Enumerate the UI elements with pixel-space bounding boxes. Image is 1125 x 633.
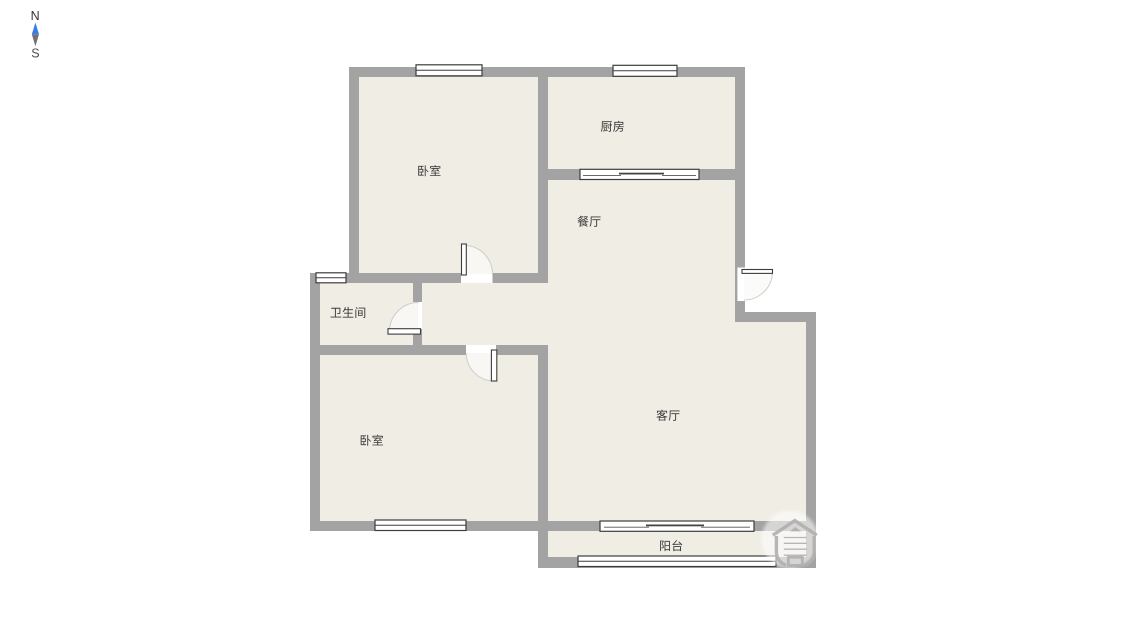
- svg-text:N: N: [31, 9, 40, 23]
- svg-text:S: S: [31, 47, 39, 61]
